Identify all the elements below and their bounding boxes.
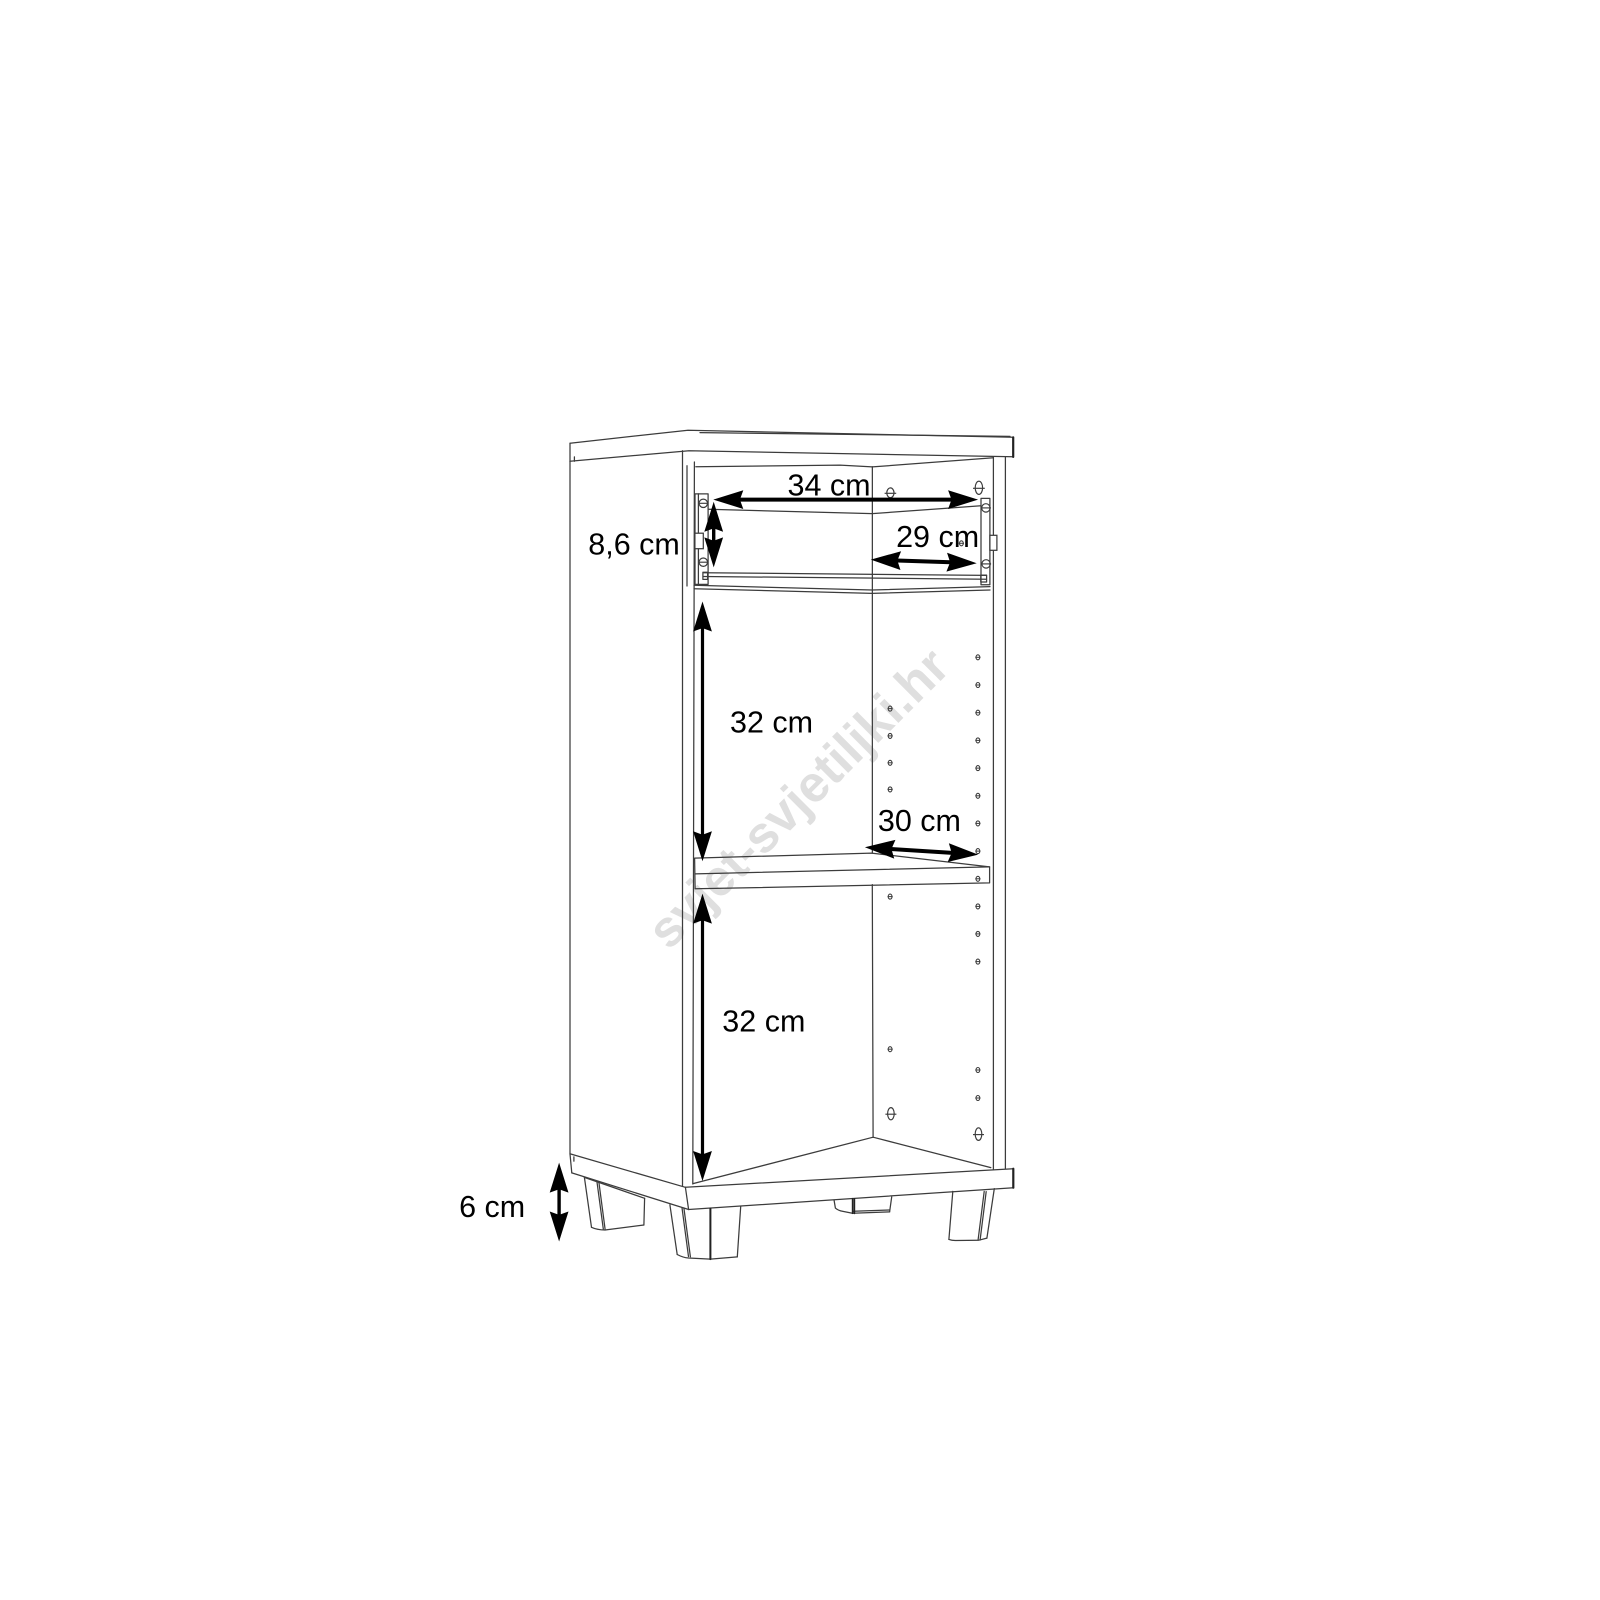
svg-text:30 cm: 30 cm: [878, 804, 961, 838]
svg-text:8,6 cm: 8,6 cm: [588, 528, 680, 562]
svg-text:32 cm: 32 cm: [730, 706, 813, 740]
svg-text:29 cm: 29 cm: [896, 520, 979, 554]
svg-text:6 cm: 6 cm: [459, 1190, 525, 1224]
svg-text:32 cm: 32 cm: [722, 1005, 805, 1039]
svg-text:34 cm: 34 cm: [788, 468, 871, 502]
